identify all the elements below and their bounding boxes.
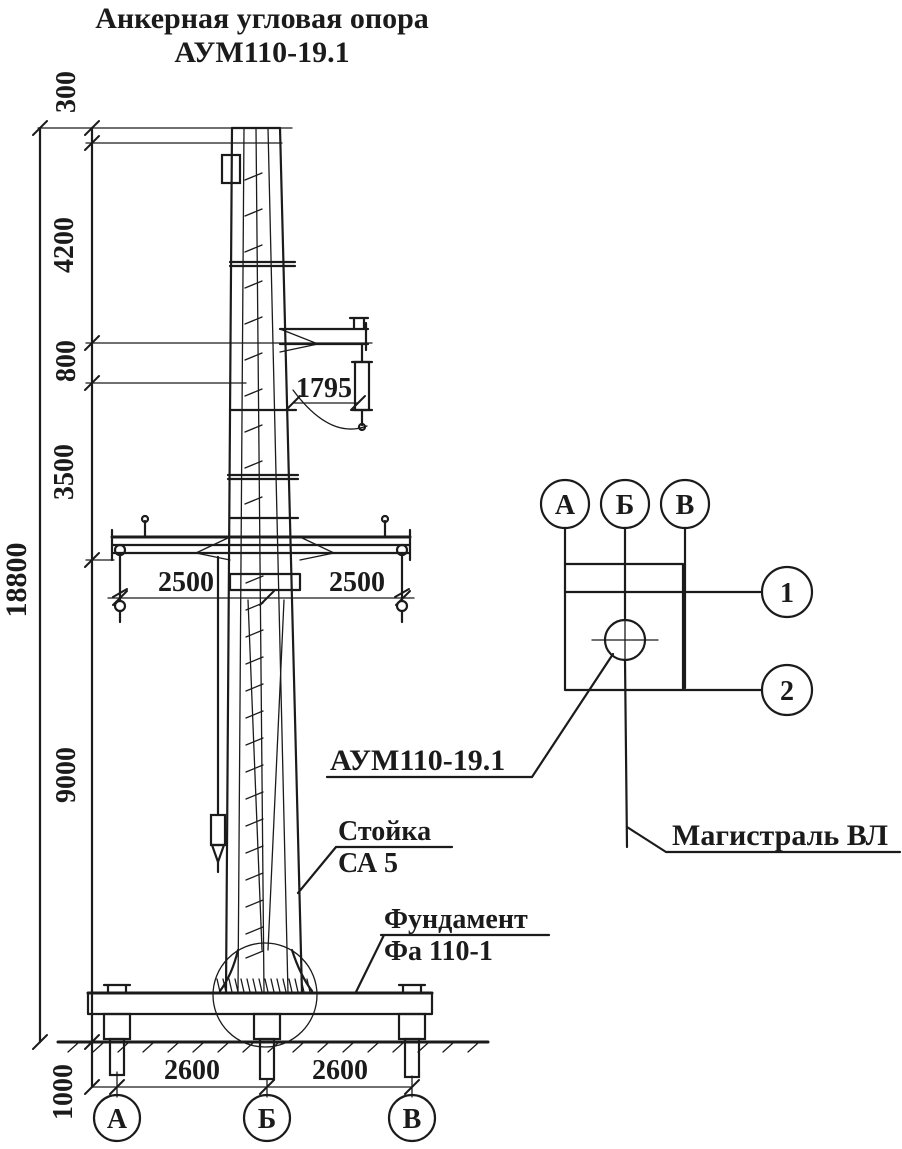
dim-9000: 9000 — [51, 747, 82, 803]
svg-text:А: А — [107, 1104, 128, 1135]
callout-stand: Стойка СА 5 — [298, 816, 452, 893]
dim-total: 18800 — [0, 543, 33, 618]
svg-text:Б: Б — [616, 490, 635, 521]
svg-text:Б: Б — [258, 1104, 277, 1135]
svg-text:А: А — [555, 490, 576, 521]
left-insulator-string — [113, 555, 127, 622]
dim-3500: 3500 — [49, 444, 80, 500]
stand-model: СА 5 — [338, 848, 398, 879]
svg-text:В: В — [676, 490, 695, 521]
dim-2500-left: 2500 — [158, 567, 214, 598]
mast — [211, 128, 312, 993]
dim-300: 300 — [51, 71, 82, 113]
dim-800: 800 — [51, 340, 82, 382]
callout-main-line: Магистраль ВЛ — [627, 819, 900, 852]
ground-cable — [211, 557, 225, 872]
main-line-label: Магистраль ВЛ — [672, 819, 888, 852]
dim-1000: 1000 — [48, 1064, 79, 1120]
axis-bubble-B-plan: Б — [601, 480, 649, 528]
row-bubble-2: 2 — [762, 665, 812, 715]
foundation-title: Фундамент — [384, 904, 528, 935]
title-line1: Анкерная угловая опора — [95, 2, 429, 35]
callout-plan-tower: АУМ110-19.1 — [327, 654, 613, 777]
dim-2500-right: 2500 — [329, 567, 385, 598]
plan-tower-label: АУМ110-19.1 — [330, 744, 505, 777]
dim-2600-left: 2600 — [164, 1055, 220, 1086]
base-dimension: 2600 2600 А Б В — [92, 1055, 435, 1141]
right-insulator-string — [395, 555, 409, 622]
svg-text:В: В — [403, 1104, 422, 1135]
drawing-sheet: Анкерная угловая опора АУМ110-19.1 18800… — [0, 0, 902, 1149]
detail-circle — [213, 943, 317, 1047]
tower-drawing-svg: Анкерная угловая опора АУМ110-19.1 18800… — [0, 0, 902, 1149]
dim-2600-right: 2600 — [312, 1055, 368, 1086]
svg-text:2: 2 — [780, 676, 794, 707]
pole-position-mark — [592, 608, 658, 673]
upper-insulator — [352, 344, 372, 430]
axis-bubble-V-plan: В — [661, 480, 709, 528]
axis-bubble-V-elevation: В — [389, 1095, 435, 1141]
pile-A — [104, 985, 130, 1075]
stand-title: Стойка — [338, 816, 431, 847]
axis-bubble-B-elevation: Б — [244, 1095, 290, 1141]
axis-bubble-A-plan: А — [541, 480, 589, 528]
upper-crossarm: 1795 — [280, 318, 372, 430]
pile-V — [399, 985, 425, 1077]
svg-text:1: 1 — [780, 578, 794, 609]
foundation — [88, 943, 432, 1079]
dim-1795: 1795 — [296, 373, 352, 404]
plan-view: А Б В 1 2 АУМ110-19.1 — [327, 480, 900, 852]
foundation-model: Фа 110-1 — [384, 936, 493, 967]
callout-foundation: Фундамент Фа 110-1 — [356, 904, 549, 992]
drawing-title: Анкерная угловая опора АУМ110-19.1 — [95, 2, 429, 69]
row-bubble-1: 1 — [762, 567, 812, 617]
axis-bubble-A-elevation: А — [94, 1095, 140, 1141]
dim-4200: 4200 — [49, 217, 80, 273]
title-line2: АУМ110-19.1 — [174, 36, 349, 69]
